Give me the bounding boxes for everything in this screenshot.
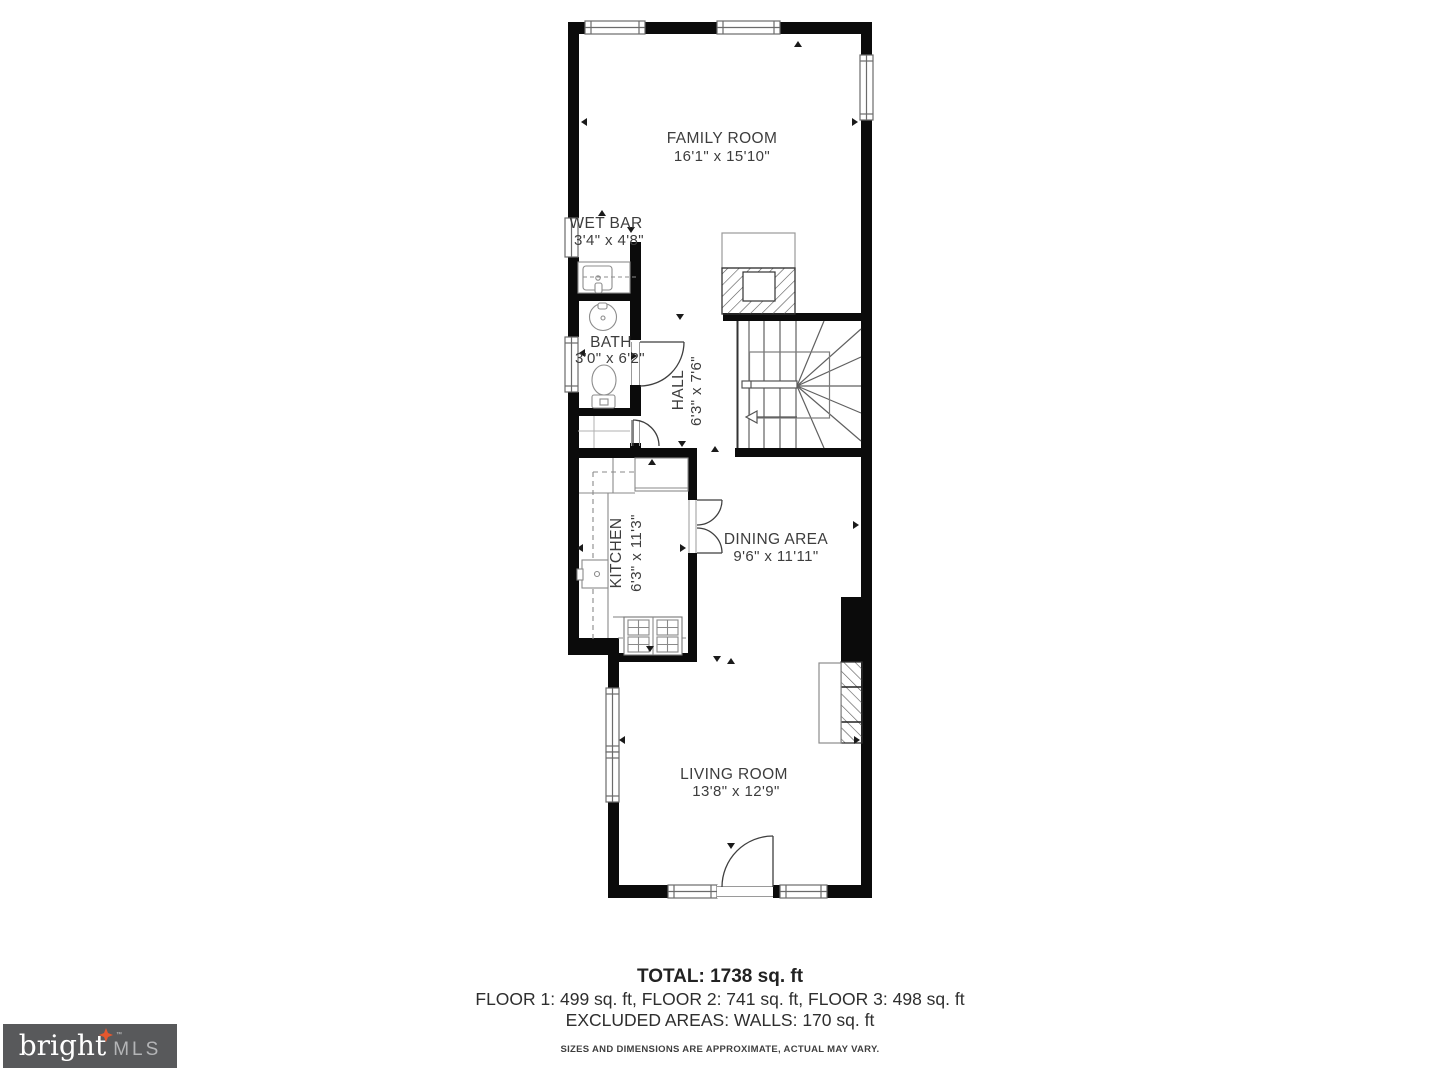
closet-door	[633, 420, 659, 446]
marker-left-icon	[619, 736, 625, 744]
wall-stair-bottom	[735, 448, 872, 457]
bath-dims: 3'0" x 6'2"	[575, 350, 645, 367]
marker-down-icon	[727, 843, 735, 849]
marker-left-icon	[581, 118, 587, 126]
chimney-block	[841, 597, 862, 662]
fireplace-hearth	[722, 233, 795, 268]
logo-mls-text: MLS	[113, 1039, 161, 1061]
drain-icon	[601, 316, 605, 320]
wet-bar-label: WET BAR	[569, 215, 642, 232]
living-room-fireplace	[819, 662, 862, 743]
marker-up-icon	[727, 658, 735, 664]
window	[606, 752, 619, 802]
stove-icon	[624, 617, 682, 655]
bath-label: BATH	[590, 334, 632, 351]
wall-wetbar-stub	[630, 242, 641, 300]
faucet-icon	[598, 303, 607, 309]
wall-kitchen-right-b	[688, 553, 697, 658]
window	[585, 21, 645, 34]
stair-direction-arrow-icon	[746, 411, 757, 423]
stair-rail	[742, 381, 797, 388]
logo-brand-text: bright	[19, 1024, 106, 1068]
fridge-icon	[635, 458, 688, 491]
fireplace-hearth	[819, 663, 841, 743]
wet-bar-dims: 3'4" x 4'8"	[574, 232, 644, 249]
kitchen-label: KITCHEN	[608, 518, 625, 589]
living-room-label: LIVING ROOM	[680, 766, 788, 783]
living-room-dims: 13'8" x 12'9"	[692, 783, 779, 800]
wetbar-fixtures	[578, 262, 637, 293]
kitchen-dims: 6'3" x 11'3"	[628, 514, 645, 592]
fireplace-opening	[743, 272, 775, 301]
marker-right-icon	[853, 521, 859, 529]
hall-dims: 6'3" x 7'6"	[688, 356, 705, 426]
window	[780, 885, 827, 898]
fireplace-firebox	[841, 662, 862, 743]
brightmls-logo: bright ™ MLS	[3, 1024, 177, 1068]
family-room-fireplace	[722, 233, 795, 314]
marker-down-icon	[678, 441, 686, 447]
family-room-dims: 16'1" x 15'10"	[674, 148, 770, 165]
wall-step	[568, 638, 619, 655]
marker-down-icon	[713, 656, 721, 662]
total-area-text: TOTAL: 1738 sq. ft	[0, 966, 1440, 988]
window	[717, 21, 780, 34]
family-room-label: FAMILY ROOM	[667, 130, 778, 147]
wall-left-upper	[568, 22, 579, 218]
window	[668, 885, 717, 898]
toilet-bowl-icon	[592, 365, 616, 395]
trademark-symbol: ™	[116, 1032, 122, 1038]
disclaimer-text: SIZES AND DIMENSIONS ARE APPROXIMATE, AC…	[0, 1044, 1440, 1055]
staircase	[738, 321, 862, 448]
window	[606, 688, 619, 752]
wall-kitchen-right-a	[688, 458, 697, 500]
wall-left-lower	[568, 392, 579, 638]
wall-bath-bottom	[571, 408, 641, 416]
marker-right-icon	[680, 544, 686, 552]
wetbar-fixture-detail	[595, 283, 602, 293]
toilet-button-icon	[600, 399, 608, 405]
kitchen-french-doors	[697, 500, 722, 553]
marker-down-icon	[676, 314, 684, 320]
marker-right-icon	[852, 118, 858, 126]
excluded-areas-text: EXCLUDED AREAS: WALLS: 170 sq. ft	[0, 1010, 1440, 1031]
marker-up-icon	[711, 446, 719, 452]
star-icon	[99, 1028, 113, 1042]
marker-up-icon	[794, 41, 802, 47]
floorplan-drawing: FAMILY ROOM 16'1" x 15'10" WET BAR 3'4" …	[0, 0, 1440, 1080]
dining-area-label: DINING AREA	[724, 531, 829, 548]
wall-right	[861, 22, 872, 898]
floorplan-page: FAMILY ROOM 16'1" x 15'10" WET BAR 3'4" …	[0, 0, 1440, 1080]
wall-wetbar-bath	[571, 293, 641, 301]
kitchen-sink-icon	[577, 560, 608, 588]
wall-kitchen-top	[568, 448, 697, 458]
floor-areas-text: FLOOR 1: 499 sq. ft, FLOOR 2: 741 sq. ft…	[0, 989, 1440, 1010]
dining-area-dims: 9'6" x 11'11"	[733, 548, 818, 565]
window	[860, 55, 873, 120]
closet-shelves	[578, 416, 630, 448]
hall-label: HALL	[670, 370, 687, 410]
